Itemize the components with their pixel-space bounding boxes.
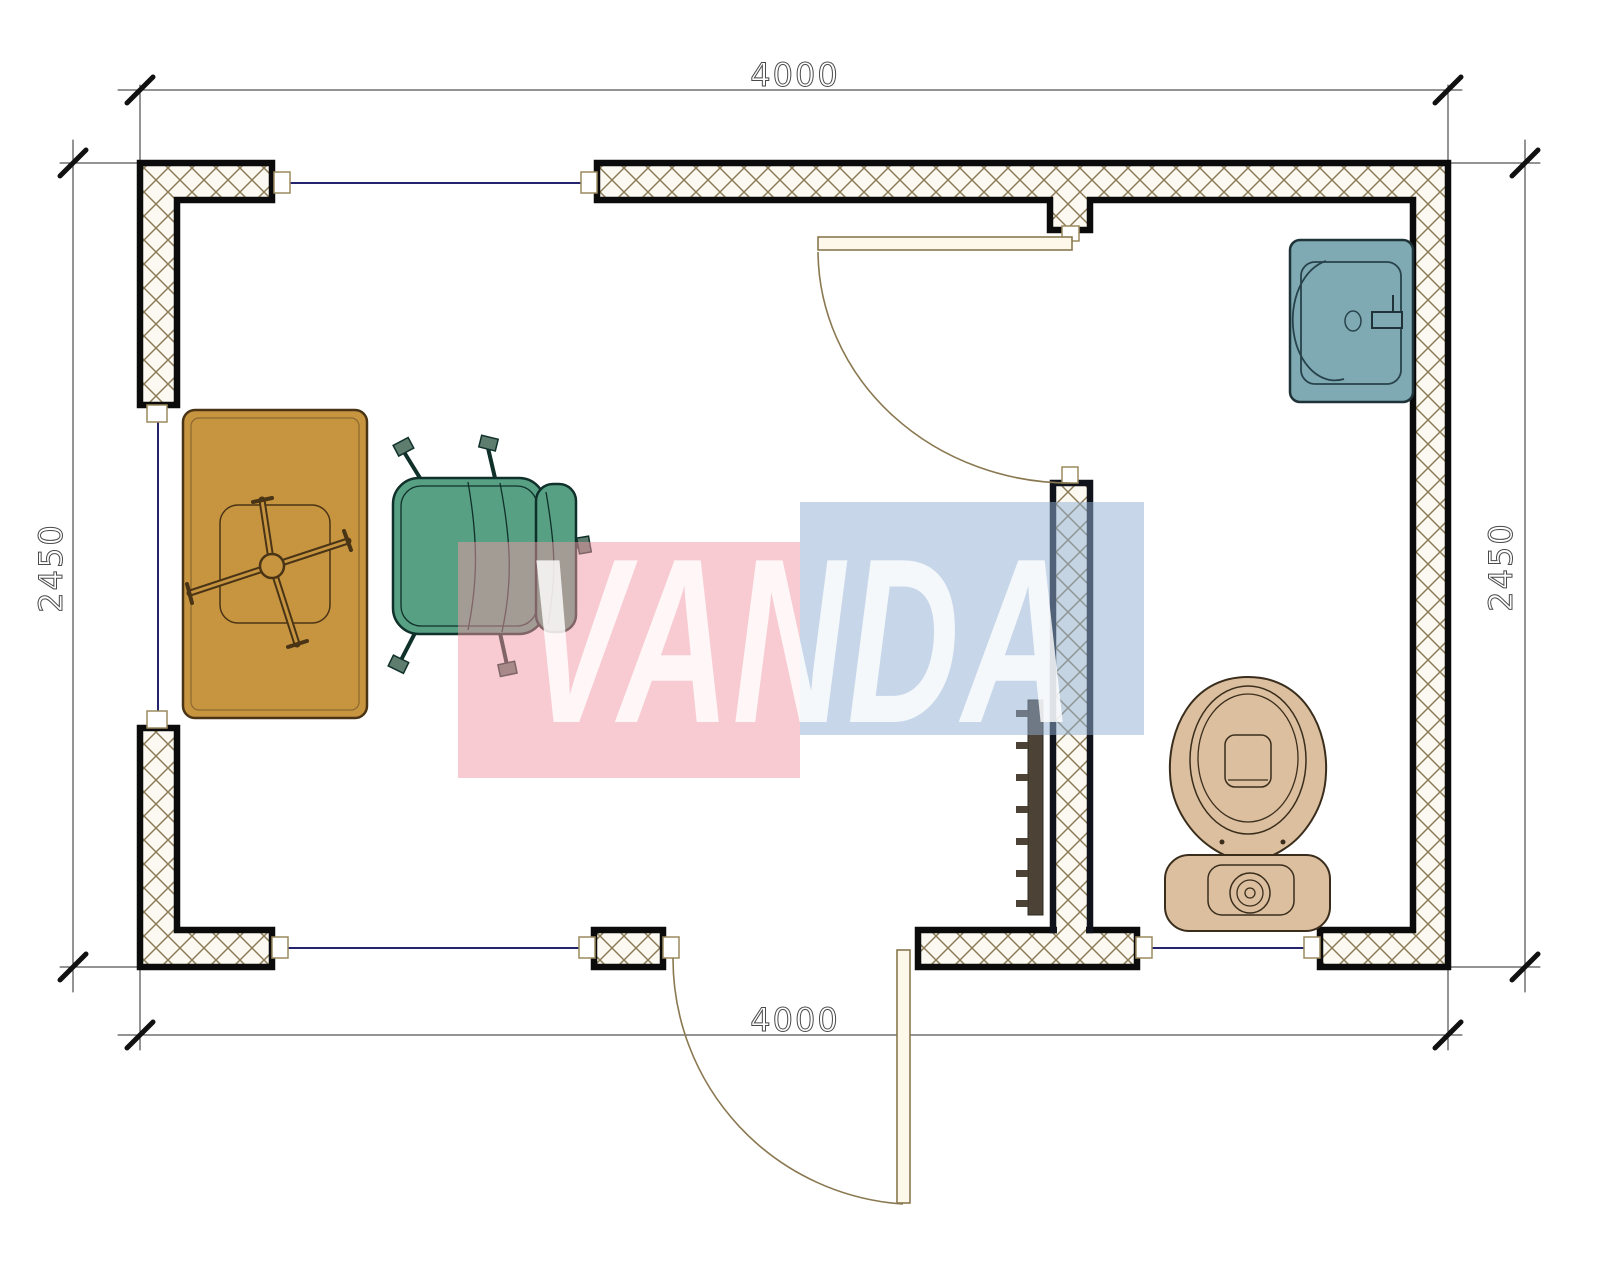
jamb	[1304, 937, 1320, 958]
wall-bottom-pier	[594, 930, 663, 967]
door-swing-arc	[818, 252, 1070, 483]
door-leaf	[897, 950, 910, 1203]
dimension-right: 2450	[1443, 140, 1540, 992]
wall-bottom-left-corner	[140, 728, 272, 967]
floor-plan-page: 4000 4000 2450 2450	[0, 0, 1600, 1280]
jamb	[274, 172, 290, 193]
watermark: VANDA	[458, 502, 1144, 778]
wall-bottom-middle	[918, 930, 1137, 967]
door-leaf	[818, 237, 1072, 250]
toilet	[1165, 677, 1330, 931]
jamb	[147, 711, 167, 728]
sink	[1290, 240, 1413, 402]
sink-faucet	[1372, 312, 1402, 328]
dim-label-bottom: 4000	[750, 1001, 839, 1039]
jamb	[1136, 937, 1152, 958]
jamb	[579, 937, 595, 958]
dimension-left: 2450	[32, 140, 145, 992]
dim-label-left: 2450	[32, 523, 70, 612]
door-entrance	[673, 950, 910, 1204]
desk	[183, 410, 367, 718]
jamb	[1062, 467, 1078, 483]
dimension-top: 4000	[118, 56, 1462, 160]
door-swing-arc	[673, 958, 903, 1204]
floor-plan-canvas: 4000 4000 2450 2450	[0, 0, 1600, 1280]
jamb	[663, 937, 679, 958]
toilet-tank	[1165, 855, 1330, 931]
toilet-bowl	[1170, 677, 1326, 860]
jamb	[272, 937, 288, 958]
jamb	[581, 172, 597, 193]
dim-label-top: 4000	[750, 56, 839, 94]
dim-label-right: 2450	[1482, 522, 1520, 611]
dimension-bottom: 4000	[118, 970, 1462, 1050]
jamb	[147, 405, 167, 422]
door-bathroom	[818, 237, 1072, 483]
watermark-text: VANDA	[523, 511, 1076, 773]
wall-junction-patch	[1057, 922, 1086, 939]
wall-top-left-corner	[140, 163, 272, 405]
